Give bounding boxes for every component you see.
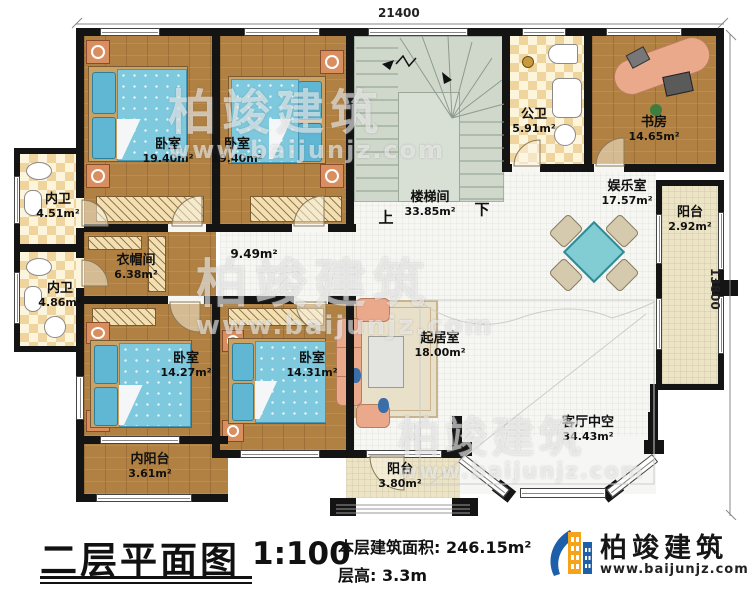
stair-up-label: 上 (378, 209, 393, 226)
room-label-living: 起居室18.00m² (414, 332, 465, 360)
brand-name: 柏竣建筑 (600, 526, 728, 565)
title-underline (40, 576, 252, 579)
brand-website: www.baijunjz.com (600, 562, 749, 577)
title-bar: 二层平面图 1:100 本层建筑面积: 246.15m² 层高: 3.3m 柏竣… (0, 520, 750, 593)
room-label-balcony-right: 阳台2.92m² (668, 206, 711, 234)
void-outline (420, 300, 654, 484)
plan-scale: 1:100 (252, 536, 351, 572)
dimension-top: 21400 (378, 6, 420, 20)
brand-logo-icon (544, 524, 596, 580)
room-label-stairwell: 楼梯间33.85m² (404, 191, 455, 219)
room-label-entertainment: 娱乐室17.57m² (601, 180, 652, 208)
room-label-bedroom-tl2: 卧室19.40m² (211, 138, 262, 166)
room-label-inner-balcony: 内阳台3.61m² (128, 453, 171, 481)
corridor-area-label: 9.49m² (230, 248, 277, 262)
room-label-bedroom-bl1: 卧室14.27m² (160, 352, 211, 380)
room-label-study: 书房14.65m² (628, 116, 679, 144)
room-label-cloakroom: 衣帽间6.38m² (114, 254, 157, 282)
room-label-bath-lower: 内卫4.86m² (38, 282, 81, 310)
door-arc (82, 138, 624, 490)
floor-area-text: 本层建筑面积: 246.15m² (338, 534, 531, 558)
floor-height-text: 层高: 3.3m (338, 562, 427, 586)
stair-treads (356, 36, 504, 199)
railing (336, 505, 470, 513)
room-label-bedroom-bl2: 卧室14.31m² (286, 352, 337, 380)
title-underline (40, 582, 252, 584)
room-label-balcony-bottom: 阳台3.80m² (378, 463, 421, 491)
room-label-void: 客厅中空34.43m² (562, 416, 614, 444)
dimension-line (72, 18, 736, 520)
dimension-right: 13800 (708, 268, 722, 310)
linework-layer (0, 0, 750, 593)
room-label-bath-upper: 内卫4.51m² (36, 193, 79, 221)
room-label-public-bath: 公卫5.91m² (512, 108, 555, 136)
room-label-bedroom-tl1: 卧室19.40m² (142, 138, 193, 166)
floorplan-canvas: 卧室19.40m² 卧室19.40m² 楼梯间33.85m² 上 下 公卫5.9… (0, 0, 750, 593)
stair-down-label: 下 (474, 201, 489, 218)
